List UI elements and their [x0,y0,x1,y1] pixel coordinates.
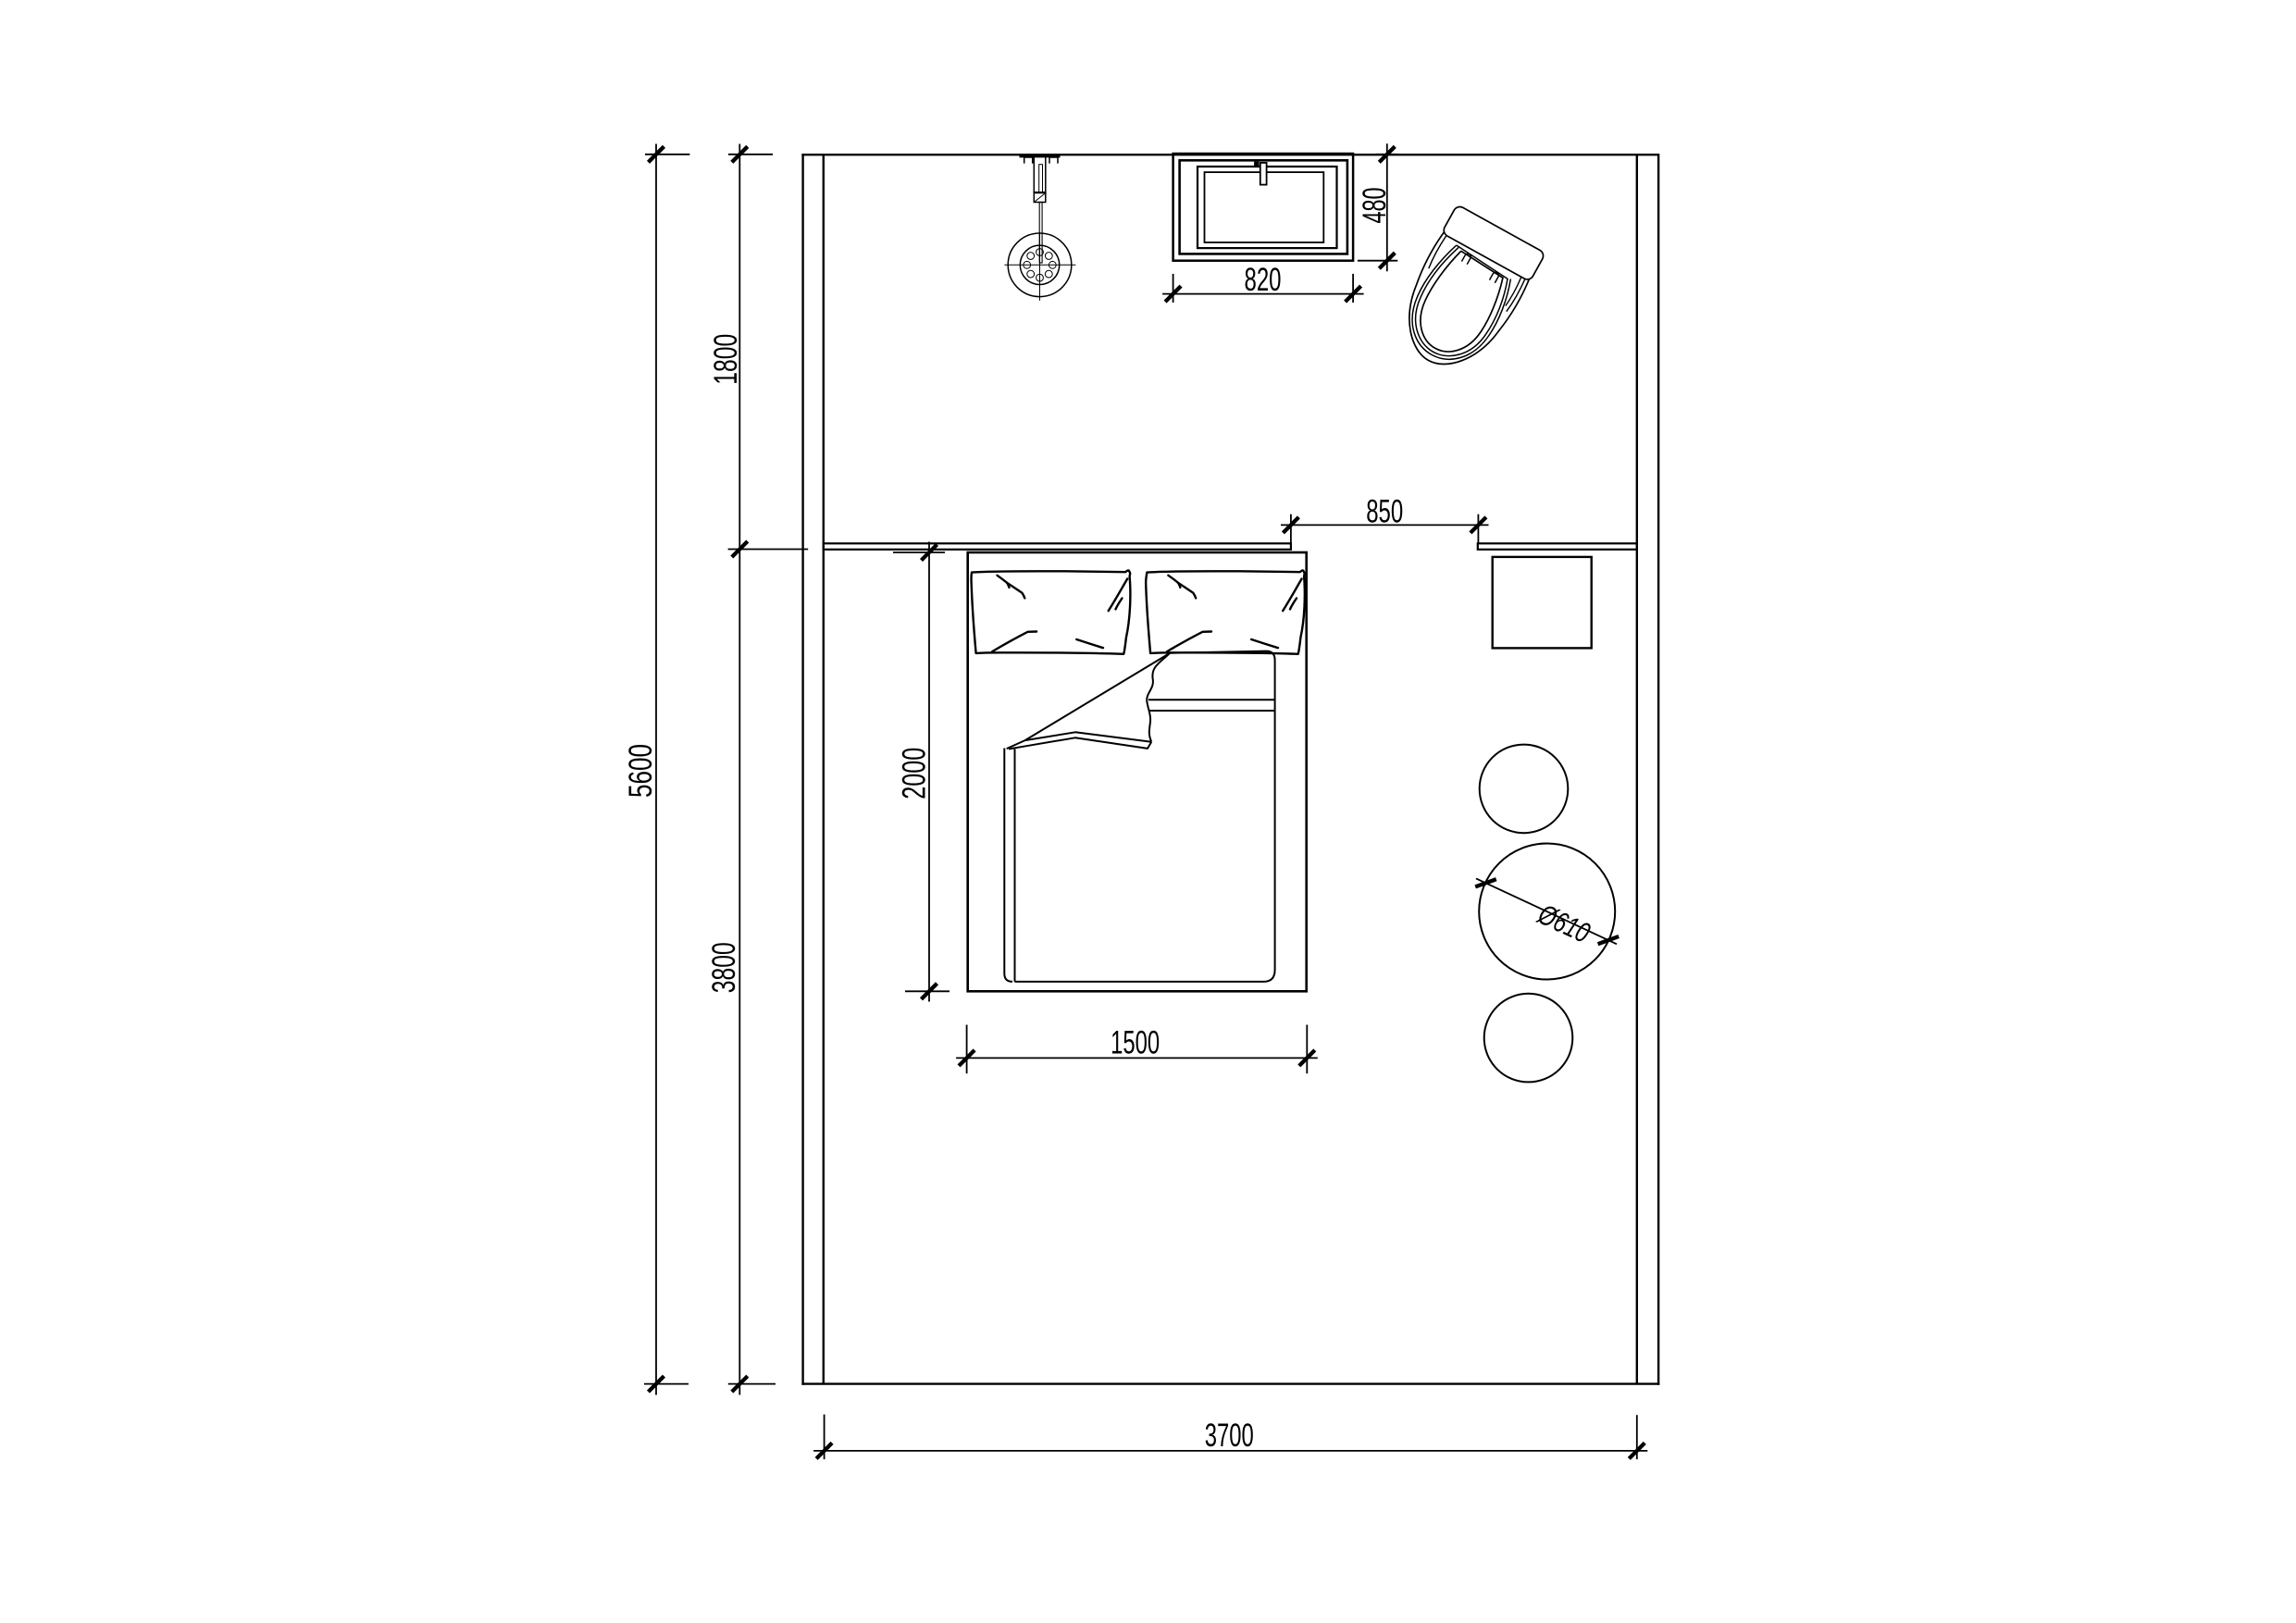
svg-text:1500: 1500 [1111,1024,1160,1060]
svg-text:480: 480 [1357,188,1393,224]
svg-text:3700: 3700 [1205,1418,1254,1454]
svg-text:820: 820 [1245,262,1282,298]
svg-text:850: 850 [1366,493,1403,529]
svg-text:5600: 5600 [623,744,659,798]
svg-text:1800: 1800 [708,334,744,385]
svg-text:2000: 2000 [896,748,932,799]
svg-text:3800: 3800 [706,942,742,993]
